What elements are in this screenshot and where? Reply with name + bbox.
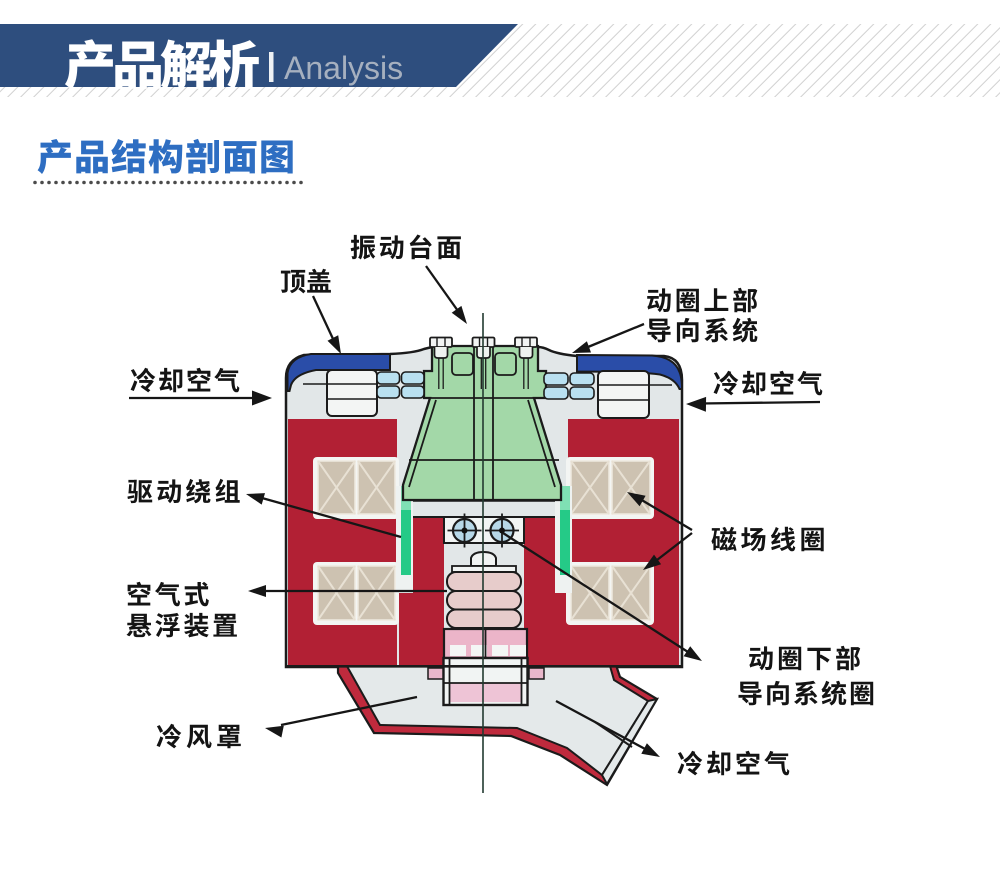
svg-text:Analysis: Analysis xyxy=(284,50,403,86)
